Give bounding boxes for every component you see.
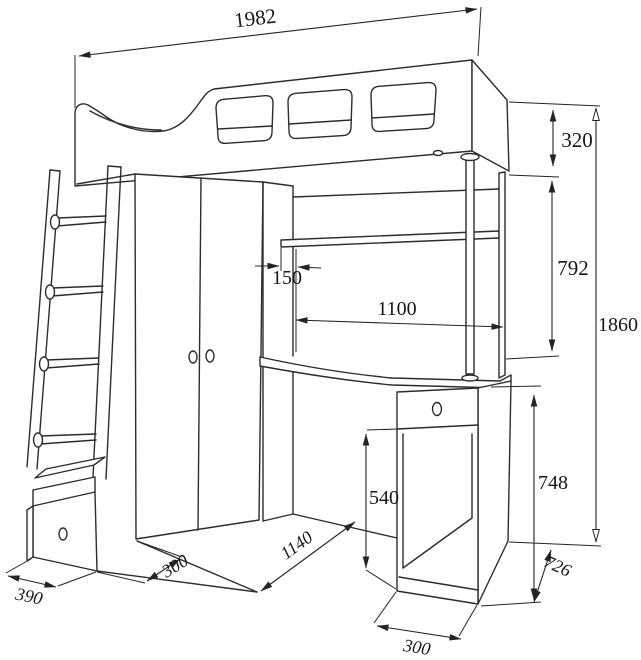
pole-foot [462,375,478,381]
ladder-rung-1-cap [51,215,60,229]
dim-label-wardrobe-base-depth: 300 [157,550,191,582]
dim-label-bed-box-height: 320 [561,128,593,152]
technical-drawing-page: 1982 320 792 1860 150 1100 540 748 726 1… [0,0,641,660]
ladder-left-rail-outer [27,170,50,467]
ladder-rung-2-tube [52,286,103,296]
pedestal-front [397,388,478,604]
ext-300B-left [374,592,396,623]
ext-390-left [6,559,31,573]
niche-floor-corner [263,514,293,521]
ladder-rung-3-cap [40,357,49,371]
dim-label-bed-clearance: 792 [557,256,589,280]
pole-top-flange [461,154,479,161]
dim-label-shelf-width: 1100 [377,298,416,320]
dim-label-knee-space-height: 540 [369,487,399,509]
dim-label-pedestal-width: 300 [401,635,432,659]
ext-1860-bottom [509,542,601,546]
ext-320-top [509,102,600,106]
dim-label-ladder-unit-depth: 390 [13,584,44,609]
ladder-rung-4-tube [40,434,96,444]
ext-1982-right [478,7,481,56]
furniture-dimension-drawing: 1982 320 792 1860 150 1100 540 748 726 1… [0,0,641,660]
ext-540-top [367,429,399,430]
right-back-strip [499,172,505,378]
dim-label-floor-span: 1140 [277,527,317,564]
pole-tube [466,159,474,374]
ladder-base-side [27,506,33,561]
ext-748-bottom [481,602,541,606]
niche-left-wall-top [263,182,293,186]
ladder-rung-3-tube [46,358,99,368]
desk-pedestal [397,381,511,604]
bed-front-rail [75,60,472,186]
support-pole [461,154,479,375]
ext-540-bottom [366,570,396,589]
ladder-right-rail-cap [108,166,121,167]
bed [75,60,509,186]
ladder-left-rail-cap [50,170,60,171]
ext-792-bottom [506,356,559,359]
ladder-rung-1-tube [57,216,106,226]
dim-label-total-width: 1982 [233,4,278,33]
ladder-step-top [35,457,105,478]
ladder [27,166,121,571]
ladder-drawer-front [33,492,97,571]
dim-label-desk-side-depth: 726 [541,551,574,580]
back-strip-panel [499,172,505,378]
pedestal-side-panel [478,381,511,604]
dim-390 [8,576,56,587]
ext-300B-right [459,605,477,636]
ext-390-right [58,572,96,586]
ladder-right-rail-inner [106,167,121,479]
wardrobe [135,174,263,539]
dim-1982 [79,9,477,56]
ladder-rung-4-cap [34,433,43,447]
bed-mount-cap [434,151,443,156]
dim-label-desk-height: 748 [538,472,568,494]
dim-label-shelf-offset: 150 [272,267,302,289]
ext-320-bottom [509,175,559,177]
ladder-rung-2-cap [46,285,55,299]
dim-label-total-height: 1860 [598,314,638,336]
ladder-right-rail-outer [93,166,108,477]
